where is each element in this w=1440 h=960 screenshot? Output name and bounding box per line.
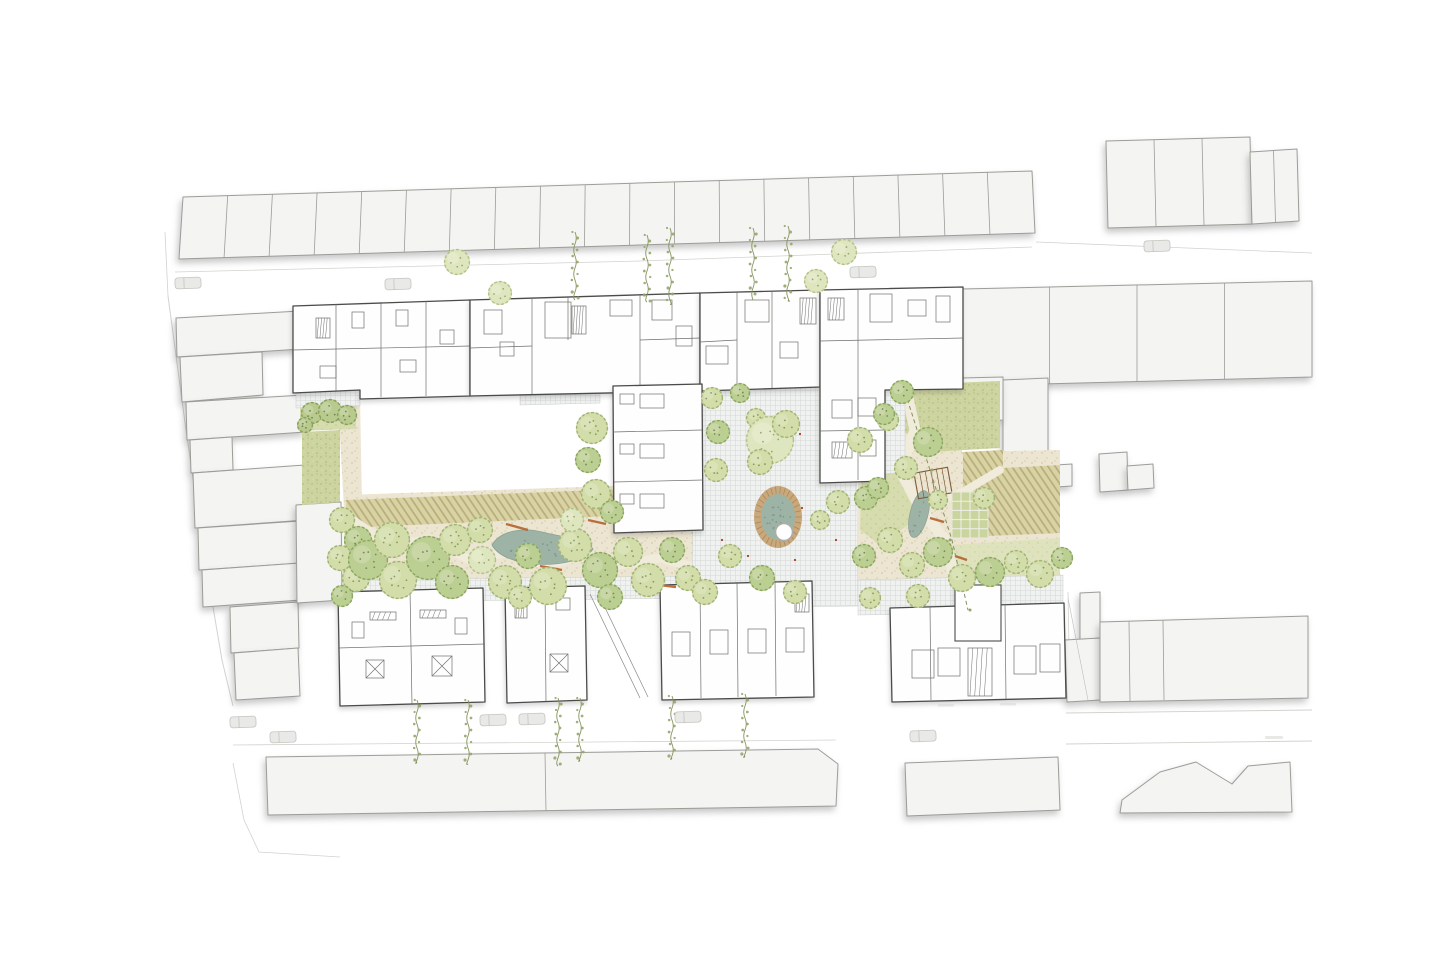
tree <box>468 546 496 574</box>
tree <box>890 380 914 404</box>
tree <box>772 410 800 438</box>
tree <box>575 447 601 473</box>
red-dot <box>835 539 837 541</box>
tree <box>973 487 995 509</box>
parked-car <box>850 266 876 278</box>
tree <box>906 584 930 608</box>
curb-line <box>165 232 168 296</box>
context-building-west-parcel-3 <box>186 395 305 440</box>
tree <box>913 427 943 457</box>
tree <box>444 249 470 275</box>
curb-line <box>1066 710 1312 713</box>
tree <box>899 552 925 578</box>
tree <box>718 544 742 568</box>
site-building-north-wing-hall <box>470 293 700 396</box>
tiny-annotation-smudge <box>938 704 954 707</box>
parked-car <box>385 278 411 290</box>
tree <box>508 585 532 609</box>
parked-car <box>270 731 296 743</box>
tree <box>859 587 881 609</box>
tree <box>852 544 876 568</box>
tree <box>659 537 685 563</box>
site-building-south-wing-west <box>338 588 485 706</box>
context-building-west-parcel-4 <box>190 437 233 473</box>
red-dot <box>801 507 803 509</box>
red-dot <box>794 559 796 561</box>
tree <box>749 565 775 591</box>
tree <box>975 557 1005 587</box>
tree <box>631 563 665 597</box>
context-building-west-parcel-1 <box>176 311 301 357</box>
tree <box>558 528 592 562</box>
site-plan-canvas <box>0 0 1440 960</box>
tree <box>374 522 410 558</box>
climbing-vine <box>740 693 749 758</box>
tree <box>877 527 903 553</box>
context-building-west-parcel-6 <box>198 521 301 570</box>
tree <box>704 458 728 482</box>
tree <box>467 517 493 543</box>
west-meadow <box>302 430 340 505</box>
tree <box>439 524 471 556</box>
tree <box>435 565 469 599</box>
tree <box>1004 550 1028 574</box>
red-dot <box>747 555 749 557</box>
tree <box>600 500 624 524</box>
tree <box>783 580 807 604</box>
tree <box>488 281 512 305</box>
tree <box>730 383 750 403</box>
context-building-ne-cluster-a <box>1106 137 1252 228</box>
passage-diagonal-1 <box>590 594 640 698</box>
tree <box>826 490 850 514</box>
tree <box>597 584 623 610</box>
curb-line <box>1036 242 1312 253</box>
hedge-shrub <box>337 405 357 425</box>
context-building-east-small-2 <box>1127 464 1154 490</box>
site-building-north-wing-mid <box>700 290 820 391</box>
tree <box>928 490 948 510</box>
site-plan <box>0 0 1440 960</box>
tiny-annotation-smudge <box>1000 703 1016 706</box>
context-building-west-parcel-9 <box>234 648 300 700</box>
parked-car <box>910 730 936 742</box>
oval-pond <box>754 486 802 548</box>
tree <box>515 543 541 569</box>
parked-car <box>230 716 256 728</box>
tree <box>582 552 618 588</box>
tree <box>810 510 830 530</box>
tree <box>747 449 773 475</box>
tree <box>867 477 889 499</box>
context-building-south-strip-jagged <box>1120 762 1292 813</box>
parked-car <box>519 713 545 725</box>
tree <box>873 403 895 425</box>
site-building-court-modules <box>613 384 703 533</box>
site-building-north-wing-west <box>293 300 470 399</box>
context-building-se-step <box>1065 638 1100 702</box>
tree <box>1051 547 1073 569</box>
context-building-west-parcel-2 <box>180 352 263 402</box>
red-dot <box>799 433 801 435</box>
curb-line <box>1066 741 1312 744</box>
tree <box>831 239 857 265</box>
tree <box>847 427 873 453</box>
tree <box>1026 560 1054 588</box>
tree <box>576 412 608 444</box>
tree <box>701 387 723 409</box>
climbing-vine <box>576 697 585 762</box>
tree <box>923 537 953 567</box>
context-building-se-big <box>1100 616 1308 702</box>
tree <box>948 564 976 592</box>
parked-car <box>175 277 201 289</box>
hedge-shrub <box>297 417 313 433</box>
context-building-west-parcel-7 <box>202 563 301 607</box>
context-building-ne-cluster-b <box>1250 149 1299 224</box>
tree <box>706 420 730 444</box>
context-building-west-parcel-5 <box>193 465 306 528</box>
tiny-annotation-smudge <box>1265 736 1283 739</box>
tree <box>331 585 353 607</box>
parked-car <box>480 714 506 726</box>
climbing-vine <box>413 699 421 764</box>
tree <box>692 579 718 605</box>
tree <box>894 456 918 480</box>
tree <box>613 537 643 567</box>
tree <box>804 269 828 293</box>
context-building-west-parcel-8 <box>230 602 299 653</box>
parked-car <box>675 711 701 723</box>
tree <box>560 508 584 532</box>
context-building-east-block <box>962 281 1312 386</box>
context-building-se-tower <box>1080 592 1100 640</box>
parked-car <box>1144 240 1170 252</box>
context-building-north-terrace-strip <box>179 171 1035 259</box>
red-dot <box>721 539 723 541</box>
pond-island <box>776 524 793 541</box>
context-building-south-strip-mid <box>905 757 1060 816</box>
context-building-south-strip-long <box>266 749 838 815</box>
tree <box>529 567 567 605</box>
context-building-east-small-1 <box>1099 452 1128 492</box>
climbing-vine <box>667 695 676 760</box>
